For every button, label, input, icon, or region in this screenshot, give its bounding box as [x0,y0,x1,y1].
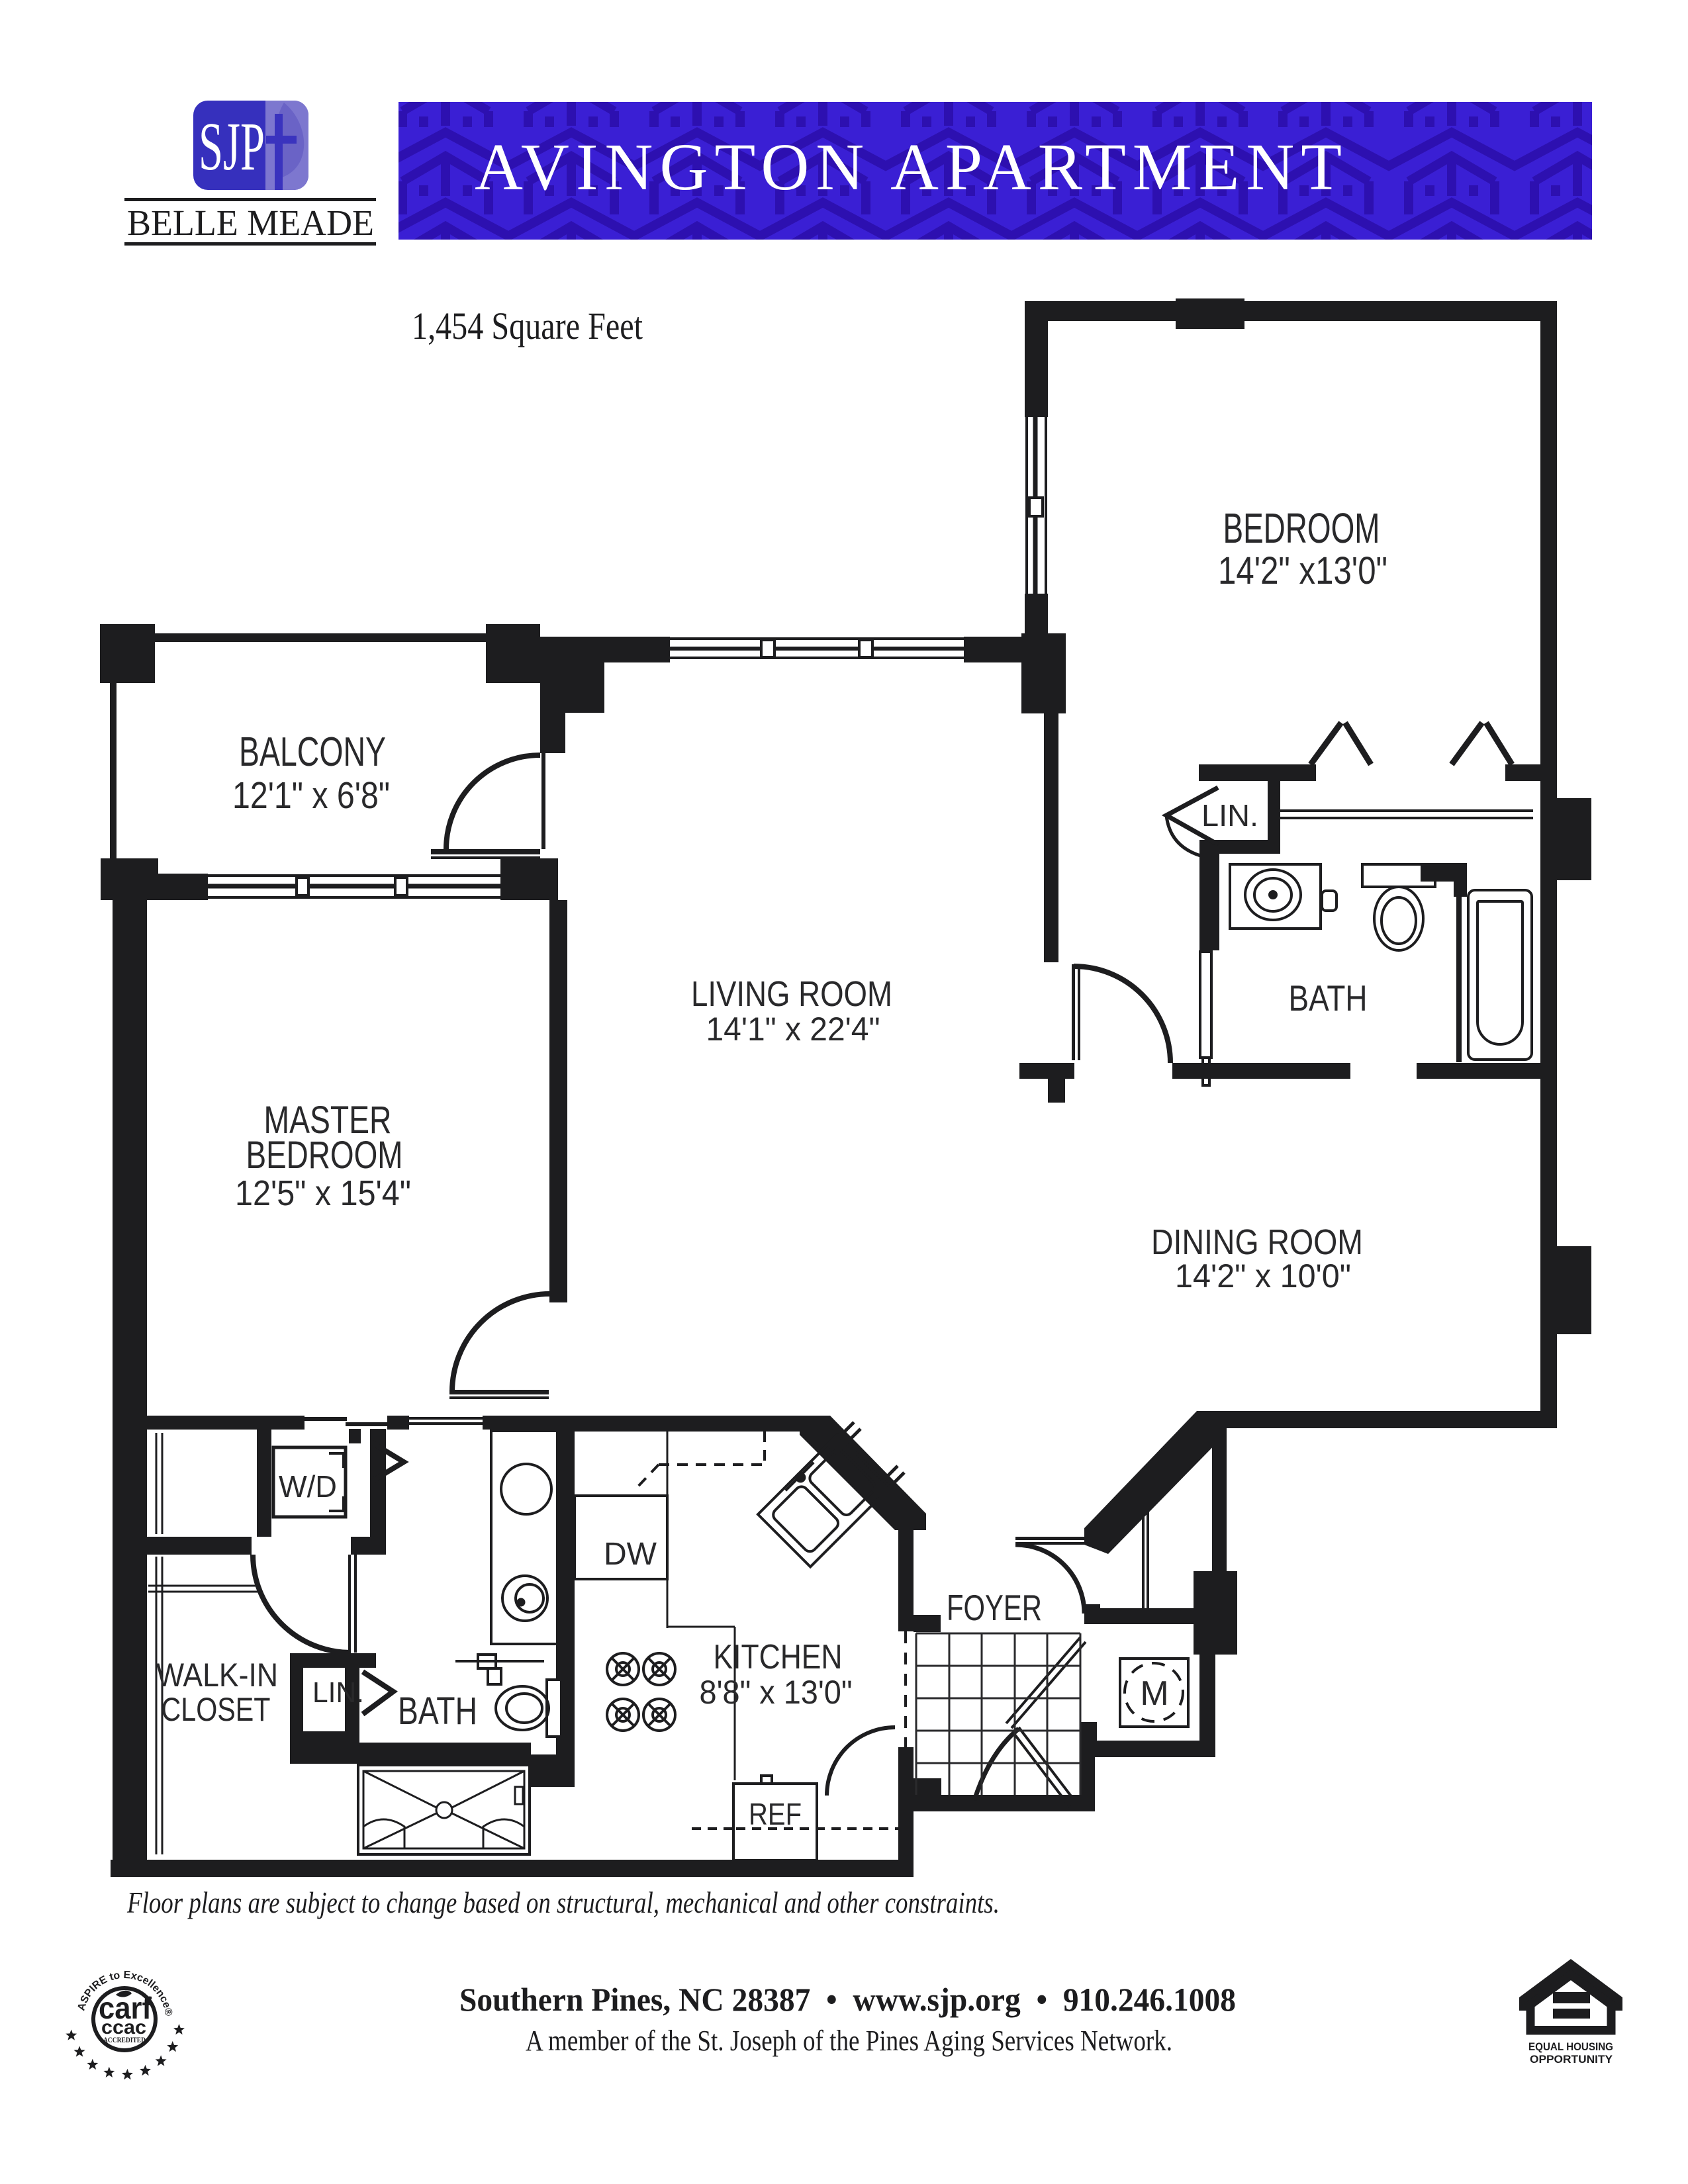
svg-text:M: M [1140,1674,1168,1713]
svg-text:LIVING ROOM: LIVING ROOM [691,974,892,1014]
svg-text:DW: DW [604,1537,657,1572]
svg-text:LIN.: LIN. [312,1676,364,1709]
svg-text:W/D: W/D [279,1469,337,1504]
svg-text:EQUAL HOUSING: EQUAL HOUSING [1528,2040,1613,2053]
svg-text:1,454 Square Feet: 1,454 Square Feet [412,304,643,347]
svg-text:14'1" x 22'4": 14'1" x 22'4" [706,1011,880,1048]
svg-text:ACCREDITED: ACCREDITED [103,2035,146,2044]
svg-text:FOYER: FOYER [947,1587,1042,1628]
svg-text:SJP: SJP [199,109,265,185]
svg-text:BALCONY: BALCONY [239,729,386,775]
svg-text:WALK-IN: WALK-IN [156,1657,278,1694]
svg-text:BELLE MEADE: BELLE MEADE [127,203,374,243]
svg-text:14'2" x13'0": 14'2" x13'0" [1218,549,1387,592]
svg-text:BEDROOM: BEDROOM [246,1134,403,1177]
svg-text:Southern Pines, NC 28387 • w: Southern Pines, NC 28387 • www.sjp.org •… [459,1981,1236,2018]
svg-text:8'8" x 13'0": 8'8" x 13'0" [700,1674,853,1711]
svg-text:OPPORTUNITY: OPPORTUNITY [1530,2053,1613,2066]
svg-text:14'2" x 10'0": 14'2" x 10'0" [1175,1257,1351,1295]
svg-text:12'5" x 15'4": 12'5" x 15'4" [235,1173,411,1213]
svg-text:LIN.: LIN. [1201,798,1258,833]
svg-text:BATH: BATH [398,1690,477,1733]
svg-text:A member of the St. Joseph of: A member of the St. Joseph of the Pines … [526,2025,1172,2057]
svg-text:12'1" x 6'8": 12'1" x 6'8" [232,774,390,817]
svg-text:KITCHEN: KITCHEN [714,1638,843,1676]
svg-text:AVINGTON APARTMENT: AVINGTON APARTMENT [475,130,1342,204]
svg-text:BATH: BATH [1289,978,1368,1019]
svg-text:REF: REF [749,1797,802,1831]
svg-text:CLOSET: CLOSET [162,1691,271,1728]
svg-text:BEDROOM: BEDROOM [1223,504,1380,552]
svg-text:Floor plans are subject to cha: Floor plans are subject to change based … [126,1886,1000,1919]
svg-text:DINING ROOM: DINING ROOM [1151,1222,1363,1262]
